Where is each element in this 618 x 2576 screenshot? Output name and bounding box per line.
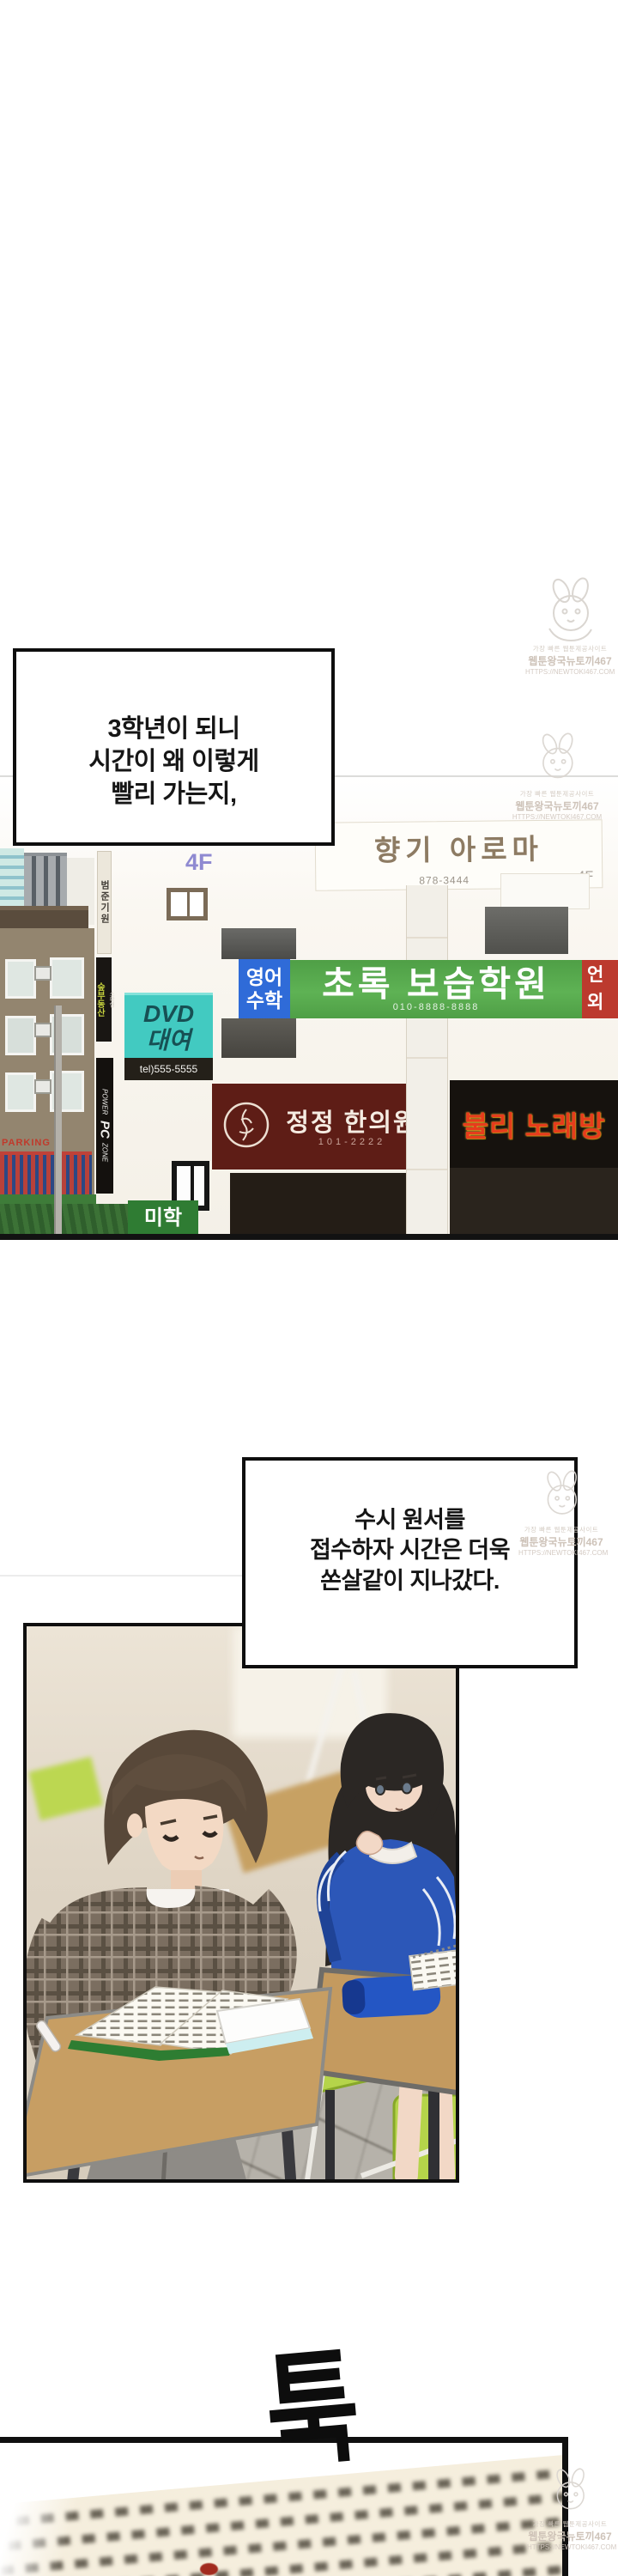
dvd-line1: DVD — [143, 1001, 194, 1028]
narration-line: 접수하자 시간은 더욱 — [310, 1535, 510, 1566]
red-answer-dot — [200, 2563, 218, 2575]
watermark-tagline: 가장 빠른 웹툰제공사이트 — [525, 644, 615, 653]
small-window — [167, 888, 208, 920]
ac-unit — [34, 1079, 51, 1094]
boy-ear — [127, 1814, 142, 1838]
street-pole — [54, 1005, 62, 1240]
narration-line: 3학년이 되니 — [107, 713, 239, 745]
dark-interior-band — [221, 928, 296, 959]
white-board — [500, 873, 590, 909]
math-label: 수학 — [246, 989, 282, 1012]
karaoke-name: 불리 노래방 — [463, 1103, 606, 1145]
hanui-phone: 101-2222 — [279, 1137, 425, 1147]
language-line2: 외 — [587, 989, 618, 1017]
academy-name: 초록 보습학원 — [322, 967, 550, 1002]
narration-line: 쏜살같이 지나갔다. — [320, 1566, 500, 1597]
students-illustration — [27, 1626, 459, 2183]
narration-line: 수시 원서를 — [354, 1505, 465, 1536]
page-edge-highlight — [0, 2477, 77, 2576]
sfx-impact: 툭 — [261, 2345, 365, 2476]
academy-sign: 초록 보습학원 010-8888-8888 — [290, 960, 582, 1018]
dvd-line2: 대여 — [147, 1028, 191, 1054]
dvd-sign: DVD 대여 — [124, 993, 213, 1060]
narration-box-2: 수시 원서를 접수하자 시간은 더욱 쏜살같이 지나갔다. — [242, 1457, 578, 1668]
dark-interior-band — [221, 1018, 296, 1058]
watermark-brand: 웹툰왕국뉴토끼467 — [525, 653, 615, 668]
narration-line: 빨리 가는지, — [111, 778, 236, 811]
apartment-window — [5, 1072, 36, 1112]
realty-tag: 소확행 — [106, 991, 115, 1008]
realty-name: 숲부동산 — [94, 982, 106, 1017]
realty-vertical-sign: 소확행 숲부동산 — [96, 957, 112, 1042]
pc-sign-zone: ZONE — [101, 1143, 109, 1162]
dvd-tel-strip: tel)555-5555 — [124, 1058, 213, 1080]
english-math-sign: 영어 수학 — [239, 959, 290, 1018]
watermark-url: HTTPS://NEWTOKI467.COM — [525, 668, 615, 676]
pc-room-vertical-sign: POWER PC ZONE — [96, 1058, 113, 1194]
storefront-dark — [230, 1173, 406, 1240]
floor-4f-label: 4F — [185, 849, 213, 876]
apartment-window — [5, 959, 36, 999]
narration-line: 시간이 왜 이렇게 — [88, 745, 258, 778]
dvd-tel: tel)555-5555 — [140, 1063, 197, 1075]
desk-leg — [325, 2090, 335, 2183]
hanui-sign: 정정 한의원 101-2222 — [212, 1084, 431, 1170]
pc-sign-pc: PC — [98, 1121, 112, 1139]
panel-bottom-border — [0, 1234, 618, 1240]
parking-label: PARKING — [2, 1138, 51, 1148]
newtoki-watermark: 가장 빠른 웹툰제공사이트 웹툰왕국뉴토끼467 HTTPS://NEWTOKI… — [525, 577, 615, 676]
language-sign: 언 외 — [582, 960, 618, 1018]
hanui-logo-icon — [222, 1101, 270, 1149]
pencil-case-cap — [342, 1979, 366, 2014]
facade-pillar — [406, 885, 448, 1240]
wall-line — [0, 1575, 245, 1577]
english-label: 영어 — [246, 966, 282, 988]
giwon-vertical-sign: 범준기원 — [97, 851, 112, 954]
karaoke-sign: 불리 노래방 — [450, 1080, 618, 1168]
academy-phone: 010-8888-8888 — [393, 1002, 480, 1012]
desk-leg — [428, 2090, 439, 2183]
green-mini-sign-text: 미학 — [144, 1206, 182, 1230]
ac-unit — [34, 1023, 51, 1037]
storefront-dark — [450, 1168, 618, 1240]
girl-eye — [403, 1783, 412, 1794]
newtoki-rabbit-icon — [539, 577, 601, 644]
apartment-window — [5, 1016, 36, 1055]
narration-box-1: 3학년이 되니 시간이 왜 이렇게 빨리 가는지, — [13, 648, 335, 846]
giwon-sign-text: 범준기원 — [98, 880, 112, 925]
spiral-workbook — [409, 1949, 459, 1990]
aroma-name: 향기 아로마 — [316, 825, 602, 869]
apartment-window — [50, 957, 84, 999]
classroom-panel — [23, 1623, 459, 2183]
hanui-name: 정정 한의원 — [279, 1103, 425, 1139]
ac-unit — [34, 966, 51, 981]
dark-interior-band — [485, 907, 568, 954]
pc-sign-power: POWER — [101, 1089, 109, 1115]
girl-eye — [376, 1784, 385, 1795]
language-line1: 언 — [587, 962, 618, 989]
striped-fence — [0, 1151, 92, 1200]
